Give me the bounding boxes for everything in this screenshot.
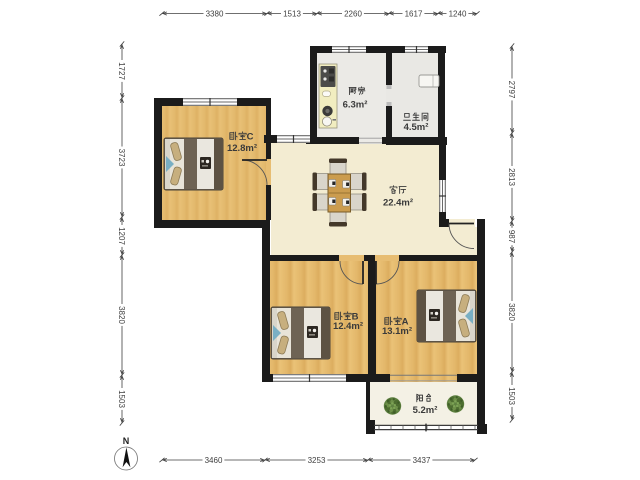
- svg-text:22.4m²: 22.4m²: [383, 197, 413, 208]
- svg-text:4.5m²: 4.5m²: [404, 122, 429, 133]
- svg-text:13.1m²: 13.1m²: [382, 326, 412, 337]
- svg-text:2813: 2813: [507, 168, 516, 186]
- svg-text:1207: 1207: [117, 227, 126, 245]
- svg-text:1513: 1513: [283, 9, 301, 18]
- svg-text:12.4m²: 12.4m²: [333, 321, 363, 332]
- svg-text:6.3m²: 6.3m²: [343, 99, 368, 110]
- svg-text:1503: 1503: [117, 390, 126, 408]
- svg-text:3820: 3820: [117, 306, 126, 324]
- svg-text:5.2m²: 5.2m²: [413, 405, 438, 416]
- svg-text:1503: 1503: [507, 387, 516, 405]
- svg-text:987: 987: [507, 230, 516, 244]
- svg-text:2260: 2260: [344, 9, 362, 18]
- svg-text:1617: 1617: [405, 9, 423, 18]
- svg-text:12.8m²: 12.8m²: [227, 143, 257, 154]
- svg-text:3437: 3437: [413, 456, 431, 465]
- svg-text:1240: 1240: [449, 9, 467, 18]
- svg-text:3820: 3820: [507, 303, 516, 321]
- svg-text:C: C: [247, 131, 254, 142]
- svg-text:N: N: [123, 436, 130, 446]
- svg-text:2797: 2797: [507, 81, 516, 99]
- svg-text:3723: 3723: [117, 149, 126, 167]
- svg-text:3460: 3460: [205, 456, 223, 465]
- svg-text:3253: 3253: [308, 456, 326, 465]
- svg-text:3380: 3380: [206, 9, 224, 18]
- svg-text:1727: 1727: [117, 62, 126, 80]
